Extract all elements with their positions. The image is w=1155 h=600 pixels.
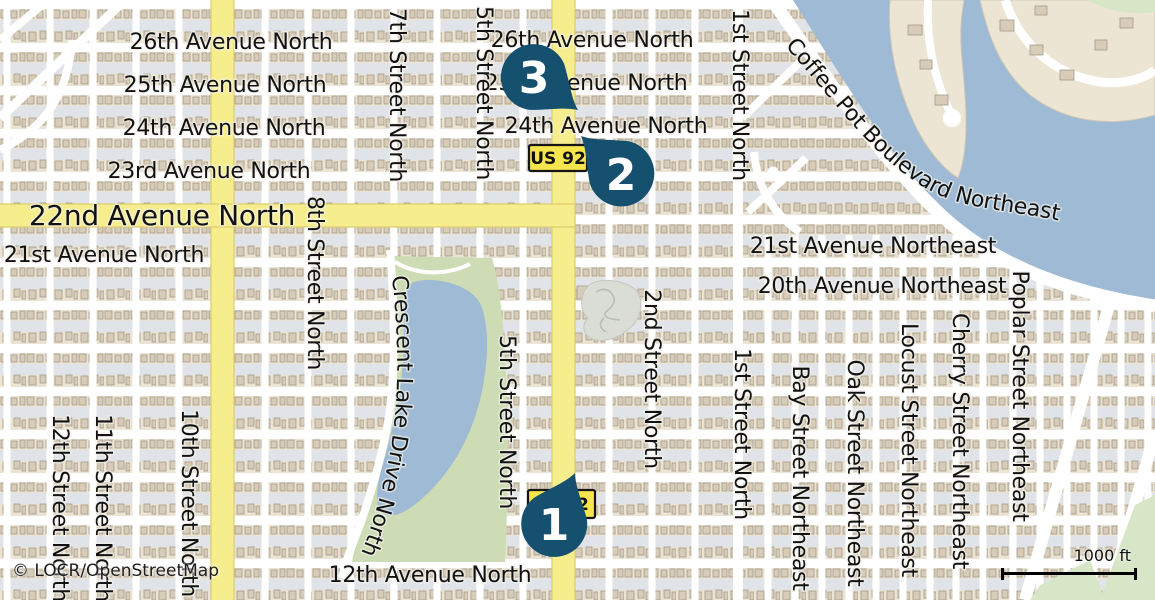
avenue-label-25th-left: 25th Avenue North (124, 73, 327, 98)
scale-bar-label: 1000 ft (1040, 546, 1131, 565)
svg-text:US 92: US 92 (530, 149, 586, 169)
street-label-5th-mid: 5th Street North (494, 335, 519, 509)
avenue-label-26th-left: 26th Avenue North (130, 30, 333, 55)
street-label-poplar: Poplar Street Northeast (1007, 270, 1032, 522)
svg-text:3: 3 (519, 53, 550, 104)
avenue-label-21st-ne: 21st Avenue Northeast (750, 234, 997, 259)
street-label-8th: 8th Street North (302, 196, 327, 370)
avenue-label-21st: 21st Avenue North (4, 243, 204, 268)
map-attribution[interactable]: © LOCR/OpenStreetMap (12, 561, 219, 581)
street-label-5th-top: 5th Street North (471, 6, 496, 180)
svg-text:2: 2 (606, 150, 637, 201)
street-label-cherry: Cherry Street Northeast (947, 313, 972, 570)
street-label-locust: Locust Street Northeast (896, 323, 921, 578)
street-label-1st-mid: 1st Street North (729, 348, 754, 520)
roundabout (768, 167, 779, 178)
street-label-7th: 7th Street North (384, 8, 409, 182)
svg-text:1: 1 (539, 500, 570, 551)
street-label-1st-top: 1st Street North (727, 9, 752, 181)
map-svg: 26th Avenue North 26th Avenue North 25th… (0, 0, 1155, 600)
avenue-label-22nd: 22nd Avenue North (29, 199, 295, 232)
avenue-label-24th-center: 24th Avenue North (505, 114, 708, 139)
street-label-2nd: 2nd Street North (639, 289, 664, 468)
avenue-label-12th: 12th Avenue North (329, 563, 532, 588)
us92-shield-top: US 92 (529, 145, 587, 171)
avenue-label-23rd: 23rd Avenue North (108, 159, 311, 184)
scale-bar-line (1004, 572, 1134, 575)
avenue-label-20th-ne: 20th Avenue Northeast (758, 274, 1007, 299)
map-canvas[interactable]: 26th Avenue North 26th Avenue North 25th… (0, 0, 1155, 600)
scale-bar (1001, 568, 1137, 580)
street-label-oak: Oak Street Northeast (842, 359, 867, 587)
street-label-bay: Bay Street Northeast (787, 365, 812, 591)
avenue-label-24th-left: 24th Avenue North (123, 116, 326, 141)
